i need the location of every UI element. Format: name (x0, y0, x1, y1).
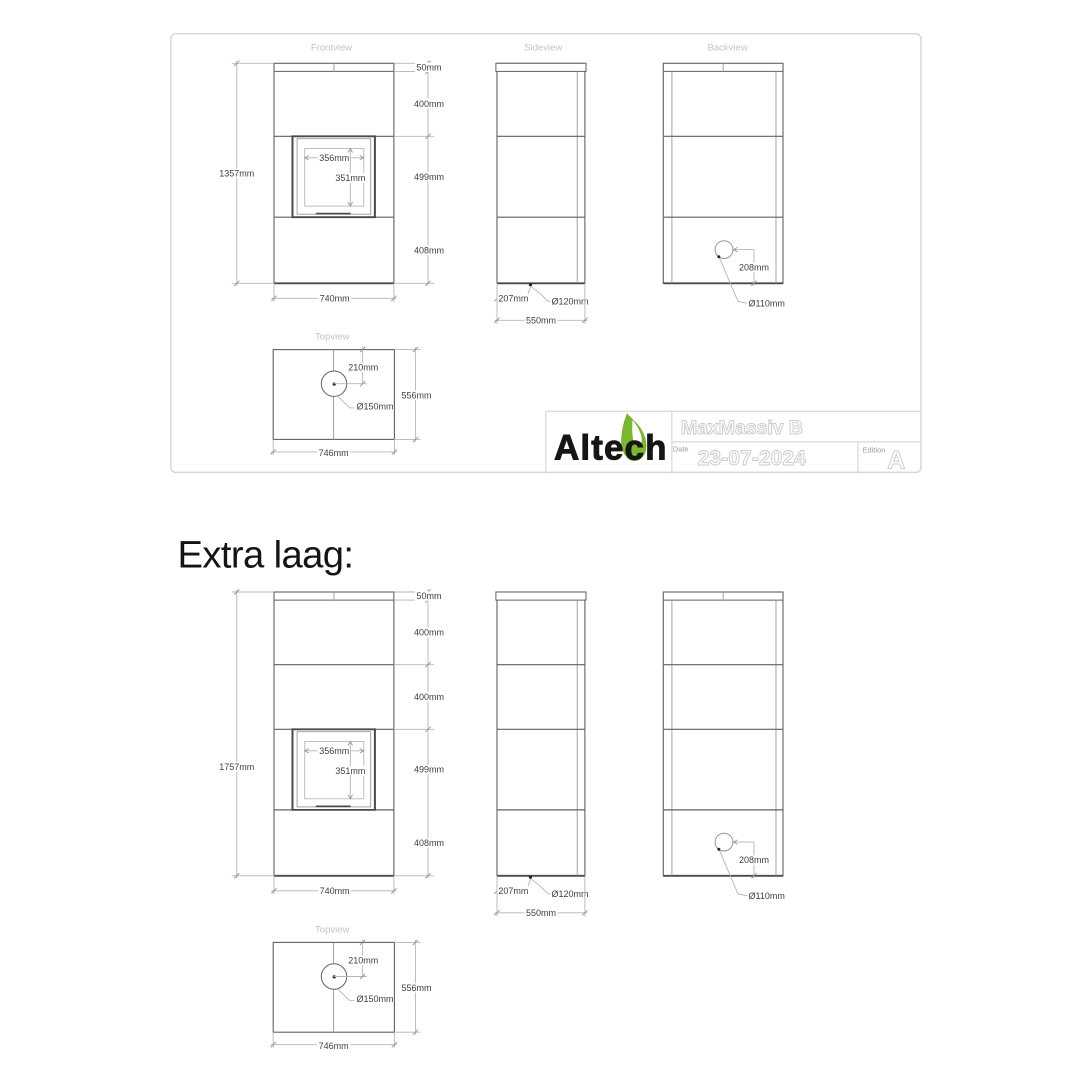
svg-text:408mm: 408mm (414, 838, 444, 848)
svg-text:Altech: Altech (554, 428, 668, 467)
svg-text:208mm: 208mm (739, 855, 769, 865)
svg-text:Ø110mm: Ø110mm (749, 891, 785, 901)
svg-text:Ø150mm: Ø150mm (357, 401, 394, 411)
svg-text:Topview: Topview (315, 332, 349, 343)
svg-text:210mm: 210mm (348, 363, 378, 373)
svg-text:351mm: 351mm (335, 173, 365, 183)
svg-text:746mm: 746mm (319, 1041, 349, 1051)
svg-text:Backview: Backview (707, 43, 747, 54)
svg-text:Topview: Topview (315, 924, 349, 935)
svg-text:Ø120mm: Ø120mm (552, 889, 589, 899)
svg-text:740mm: 740mm (320, 886, 350, 896)
svg-text:Ø110mm: Ø110mm (749, 298, 785, 308)
svg-text:23-07-2024: 23-07-2024 (698, 447, 807, 470)
svg-text:207mm: 207mm (498, 294, 528, 304)
svg-text:1757mm: 1757mm (219, 762, 254, 772)
svg-text:499mm: 499mm (414, 172, 444, 182)
svg-text:Edition: Edition (863, 446, 886, 455)
svg-text:351mm: 351mm (335, 766, 365, 776)
svg-text:Date: Date (673, 444, 689, 453)
svg-text:356mm: 356mm (319, 746, 349, 756)
svg-text:208mm: 208mm (739, 263, 769, 273)
svg-text:Ø150mm: Ø150mm (357, 994, 394, 1004)
svg-text:50mm: 50mm (416, 591, 441, 601)
svg-text:356mm: 356mm (319, 153, 349, 163)
svg-text:408mm: 408mm (414, 245, 444, 255)
svg-text:210mm: 210mm (348, 955, 378, 965)
svg-text:1357mm: 1357mm (219, 169, 254, 179)
svg-text:50mm: 50mm (416, 62, 441, 72)
svg-text:499mm: 499mm (414, 765, 444, 775)
svg-text:Frontview: Frontview (311, 43, 352, 54)
svg-text:A: A (887, 447, 905, 475)
svg-text:400mm: 400mm (414, 628, 444, 638)
svg-text:400mm: 400mm (414, 692, 444, 702)
svg-text:556mm: 556mm (401, 390, 431, 400)
svg-text:Extra laag:: Extra laag: (178, 533, 354, 576)
svg-text:207mm: 207mm (498, 886, 528, 896)
svg-text:746mm: 746mm (319, 448, 349, 458)
svg-text:550mm: 550mm (526, 908, 556, 918)
svg-text:Sideview: Sideview (524, 43, 562, 54)
svg-text:740mm: 740mm (320, 293, 350, 303)
svg-text:MaxMassiv B: MaxMassiv B (681, 417, 803, 439)
svg-text:556mm: 556mm (401, 983, 431, 993)
svg-text:550mm: 550mm (526, 315, 556, 325)
svg-text:Ø120mm: Ø120mm (552, 296, 589, 306)
svg-text:400mm: 400mm (414, 99, 444, 109)
